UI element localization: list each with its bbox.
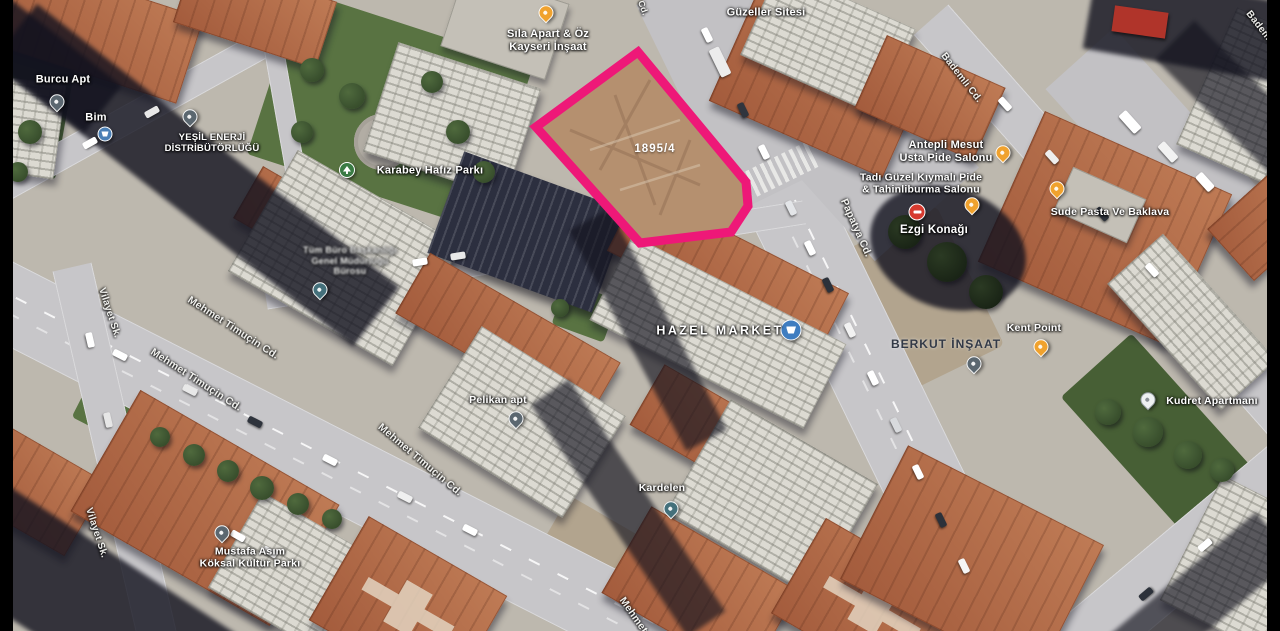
label-yesil-enerji[interactable]: YEŞİL ENERJİ DİSTRİBÜTÖRLÜĞÜ: [165, 132, 260, 154]
label-kurum-binasi[interactable]: Tüm Büro Başkanlığı Genel Müdürlüğü Büro…: [303, 245, 397, 277]
letterbox-left: [0, 0, 13, 631]
street-mehmet-timucin-3: Mehmet Timuçin Cd.: [375, 421, 464, 499]
label-pelikan-apt[interactable]: Pelikan apt: [469, 394, 527, 406]
label-antepli-mesut[interactable]: Antepli Mesut Usta Pide Salonu: [899, 139, 992, 165]
label-kardelen[interactable]: Kardelen: [639, 482, 686, 494]
letterbox-right: [1267, 0, 1280, 631]
labels-layer: Sıla Apart & Öz Kayseri İnşaatGüzeller S…: [0, 0, 1280, 631]
label-kudret-apartmani[interactable]: Kudret Apartmanı: [1166, 395, 1258, 407]
label-karabey-hafiz-parki[interactable]: Karabey Hafız Parkı: [377, 165, 484, 178]
street-partial-top: Cd.: [635, 0, 650, 17]
label-burcu-apt[interactable]: Burcu Apt: [36, 74, 91, 87]
street-vilayet-sk-1: Vilayet Sk.: [95, 286, 122, 339]
street-mehmet-timucin-2: Mehmet Timuçin Cd.: [148, 346, 244, 414]
street-papatya-cd: Papatya Cd.: [838, 197, 875, 259]
label-sila-apart[interactable]: Sıla Apart & Öz Kayseri İnşaat: [507, 28, 589, 54]
label-kent-point[interactable]: Kent Point: [1007, 322, 1062, 334]
map-canvas[interactable]: Sıla Apart & Öz Kayseri İnşaatGüzeller S…: [0, 0, 1280, 631]
label-hazel-market[interactable]: HAZEL MARKET: [656, 324, 783, 339]
street-mehmet-timucin-4: Mehmet Timuçin Cd.: [617, 595, 688, 631]
label-parcel-number: 1895/4: [634, 143, 675, 157]
street-bademli-cd-1: Bademli Cd.: [938, 51, 984, 106]
street-mehmet-timucin-1: Mehmet Timuçin Cd.: [185, 294, 281, 362]
satellite-map-screenshot: Sıla Apart & Öz Kayseri İnşaatGüzeller S…: [0, 0, 1280, 631]
label-bim[interactable]: Bim: [85, 112, 106, 125]
label-tadi-guzel[interactable]: Tadı Güzel Kıymalı Pide & Tahinliburma S…: [860, 172, 982, 197]
label-sude-pasta[interactable]: Sude Pasta Ve Baklava: [1051, 206, 1170, 218]
label-guzeller-sitesi[interactable]: Güzeller Sitesi: [727, 7, 806, 20]
label-ezgi-konagi[interactable]: Ezgi Konağı: [900, 224, 968, 238]
label-berkut-insaat[interactable]: BERKUT İNŞAAT: [891, 337, 1001, 351]
street-vilayet-sk-2: Vilayet Sk.: [82, 506, 109, 559]
label-mustafa-koksal[interactable]: Mustafa Asım Köksal Kültür Parkı: [200, 546, 301, 571]
